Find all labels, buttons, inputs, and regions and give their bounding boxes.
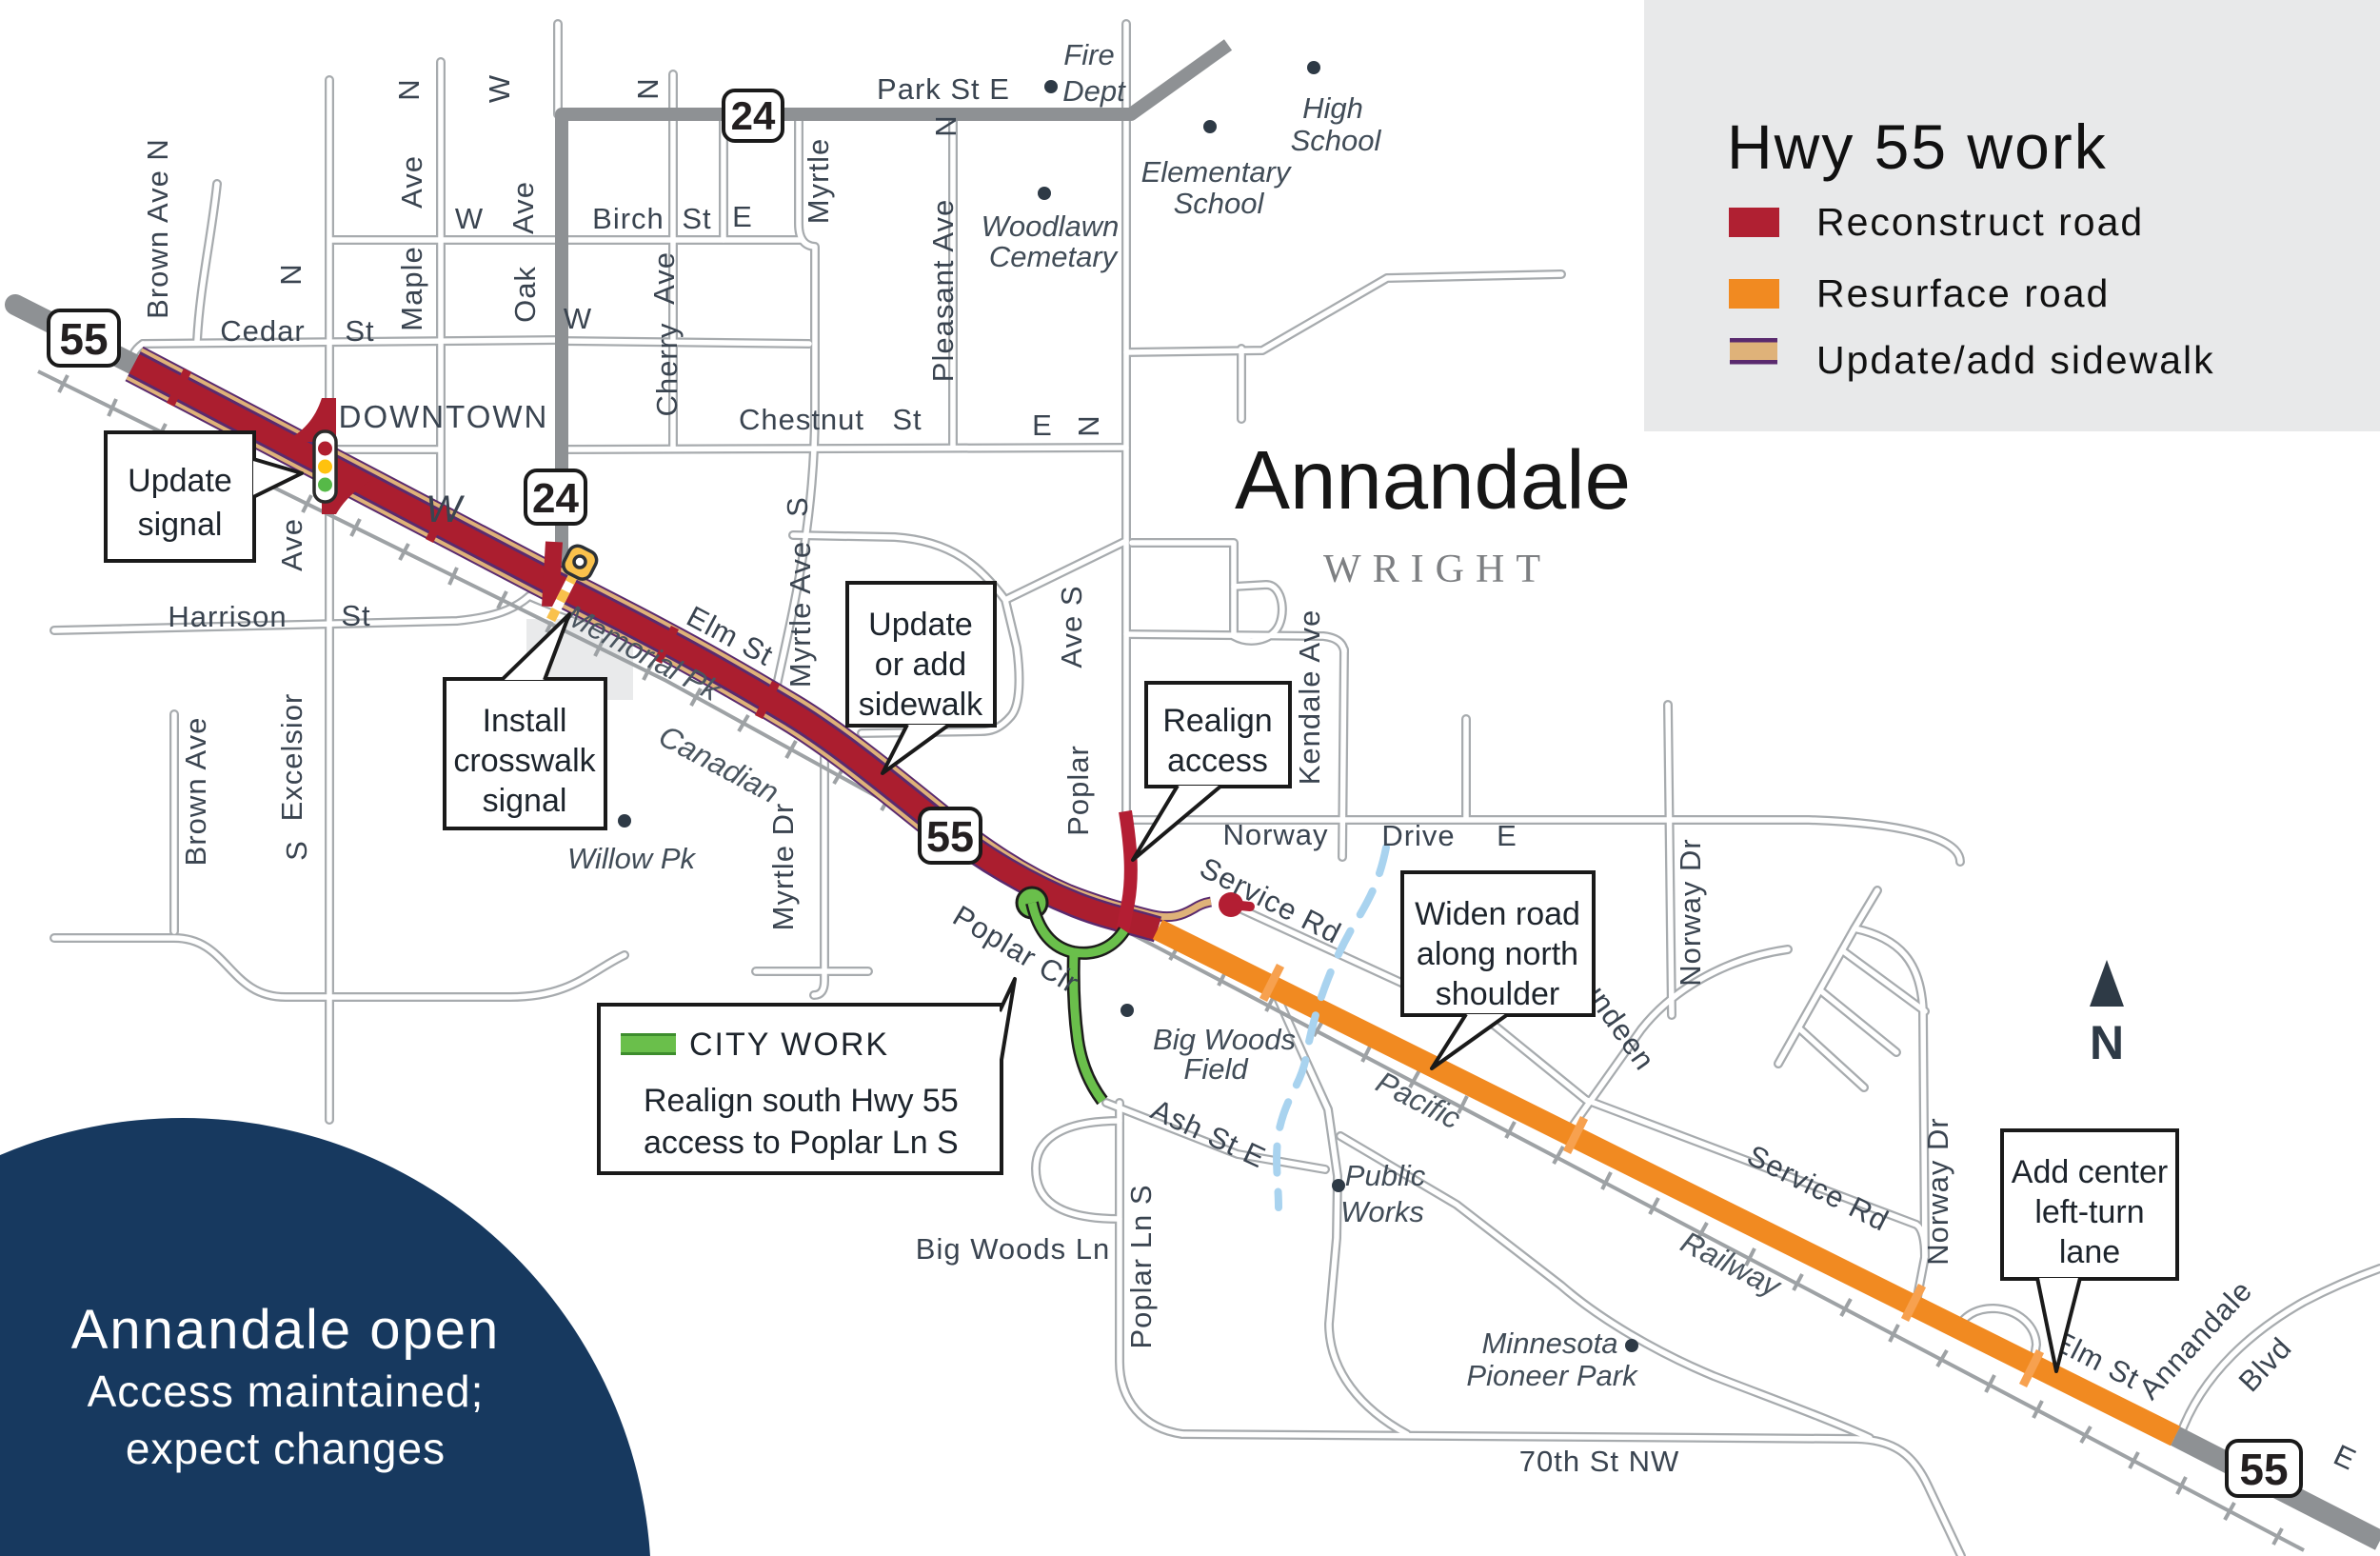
svg-text:24: 24 [731, 93, 776, 138]
svg-text:Works: Works [1340, 1195, 1424, 1228]
svg-text:W: W [564, 302, 592, 335]
svg-text:DOWNTOWN: DOWNTOWN [339, 399, 549, 434]
svg-text:sidewalk: sidewalk [859, 687, 983, 723]
svg-text:Update: Update [868, 607, 973, 643]
svg-text:Ave: Ave [395, 155, 428, 209]
svg-text:School: School [1291, 124, 1382, 157]
svg-text:55: 55 [2239, 1445, 2288, 1494]
svg-text:Ave S: Ave S [1055, 585, 1088, 668]
svg-text:Hwy 55 work: Hwy 55 work [1727, 111, 2108, 182]
svg-text:Park St E: Park St E [877, 72, 1010, 106]
svg-text:N: N [2090, 1016, 2124, 1069]
svg-text:E: E [732, 200, 753, 233]
svg-text:Install: Install [483, 703, 567, 739]
svg-text:N: N [274, 263, 307, 285]
svg-text:Big Woods Ln: Big Woods Ln [916, 1232, 1110, 1266]
svg-text:E: E [1497, 819, 1517, 852]
svg-text:N: N [929, 114, 962, 136]
svg-text:Brown Ave: Brown Ave [179, 717, 212, 867]
svg-text:signal: signal [138, 507, 223, 543]
svg-text:Brown Ave N: Brown Ave N [141, 138, 174, 319]
svg-text:crosswalk: crosswalk [453, 743, 596, 779]
svg-text:WRIGHT: WRIGHT [1323, 548, 1552, 591]
svg-text:Widen road: Widen road [1415, 896, 1580, 932]
svg-text:Resurface road: Resurface road [1816, 271, 2110, 315]
svg-text:shoulder: shoulder [1436, 976, 1559, 1012]
svg-text:access to Poplar Ln S: access to Poplar Ln S [644, 1125, 959, 1161]
svg-text:S: S [280, 840, 313, 861]
svg-text:Myrtle Dr: Myrtle Dr [766, 803, 800, 931]
svg-text:Access maintained;: Access maintained; [88, 1366, 485, 1416]
svg-text:Norway: Norway [1222, 818, 1328, 851]
svg-text:Elementary: Elementary [1141, 155, 1293, 189]
svg-text:St: St [682, 202, 711, 235]
svg-text:Poplar Ln S: Poplar Ln S [1124, 1185, 1158, 1349]
svg-text:High: High [1302, 91, 1363, 125]
svg-text:Pioneer Park: Pioneer Park [1466, 1359, 1638, 1392]
svg-text:Fire: Fire [1063, 38, 1114, 71]
svg-text:Harrison: Harrison [168, 600, 287, 633]
svg-text:55: 55 [59, 314, 108, 364]
svg-text:St: St [341, 599, 370, 632]
svg-text:W: W [426, 489, 465, 530]
svg-text:N: N [392, 78, 426, 100]
svg-text:Minnesota: Minnesota [1481, 1327, 1617, 1360]
svg-text:access: access [1167, 743, 1268, 779]
svg-text:signal: signal [483, 783, 567, 819]
svg-text:along north: along north [1417, 936, 1578, 972]
svg-text:Cedar: Cedar [220, 314, 305, 348]
svg-text:Annandale open: Annandale open [71, 1299, 501, 1361]
svg-text:55: 55 [926, 812, 974, 861]
svg-text:Norway Dr: Norway Dr [1674, 838, 1707, 986]
svg-text:Myrtle: Myrtle [802, 138, 835, 224]
svg-text:Realign: Realign [1162, 703, 1272, 739]
svg-text:N: N [1072, 414, 1105, 436]
svg-text:70th St NW: 70th St NW [1519, 1445, 1680, 1478]
svg-text:expect changes: expect changes [126, 1424, 446, 1473]
svg-text:left-turn: left-turn [2034, 1194, 2144, 1230]
svg-text:Poplar: Poplar [1061, 745, 1095, 836]
svg-text:Kendale Ave: Kendale Ave [1293, 609, 1326, 786]
svg-text:Willow Pk: Willow Pk [567, 842, 697, 875]
svg-text:Ave: Ave [275, 518, 308, 571]
svg-text:CITY WORK: CITY WORK [689, 1027, 889, 1063]
svg-text:St: St [892, 403, 922, 436]
svg-text:E: E [1032, 409, 1053, 442]
svg-text:Woodlawn: Woodlawn [982, 209, 1120, 243]
svg-text:Big Woods: Big Woods [1153, 1023, 1296, 1056]
svg-text:Annandale: Annandale [1235, 434, 1631, 527]
svg-text:Add center: Add center [2012, 1154, 2168, 1190]
svg-text:St: St [345, 314, 374, 348]
svg-text:Pleasant Ave: Pleasant Ave [926, 199, 960, 382]
svg-text:Birch: Birch [592, 202, 664, 235]
svg-text:Drive: Drive [1381, 819, 1455, 852]
svg-text:Cemetary: Cemetary [989, 240, 1120, 273]
svg-text:Realign south Hwy 55: Realign south Hwy 55 [644, 1083, 959, 1119]
svg-text:Update/add sidewalk: Update/add sidewalk [1816, 338, 2215, 382]
svg-text:Oak: Oak [508, 266, 542, 323]
svg-text:Reconstruct road: Reconstruct road [1816, 200, 2144, 244]
svg-text:Field: Field [1183, 1052, 1249, 1086]
svg-text:Myrtle Ave: Myrtle Ave [783, 541, 817, 688]
svg-text:Public: Public [1345, 1159, 1426, 1192]
svg-text:lane: lane [2059, 1234, 2120, 1270]
svg-text:Cherry: Cherry [650, 322, 684, 416]
svg-text:24: 24 [532, 475, 579, 522]
svg-text:Maple: Maple [395, 246, 428, 330]
svg-text:School: School [1174, 187, 1265, 220]
svg-text:Ave: Ave [506, 181, 540, 234]
svg-text:N: N [631, 77, 664, 99]
svg-text:W: W [483, 74, 516, 103]
svg-text:Update: Update [128, 463, 232, 499]
svg-text:Ave: Ave [647, 251, 681, 305]
svg-text:S: S [781, 496, 814, 517]
svg-text:Dept: Dept [1062, 74, 1126, 108]
svg-text:Norway Dr: Norway Dr [1921, 1117, 1954, 1265]
svg-text:W: W [455, 202, 484, 235]
svg-text:or add: or add [875, 647, 966, 683]
svg-text:Excelsior: Excelsior [275, 693, 308, 822]
svg-text:Chestnut: Chestnut [739, 403, 864, 436]
